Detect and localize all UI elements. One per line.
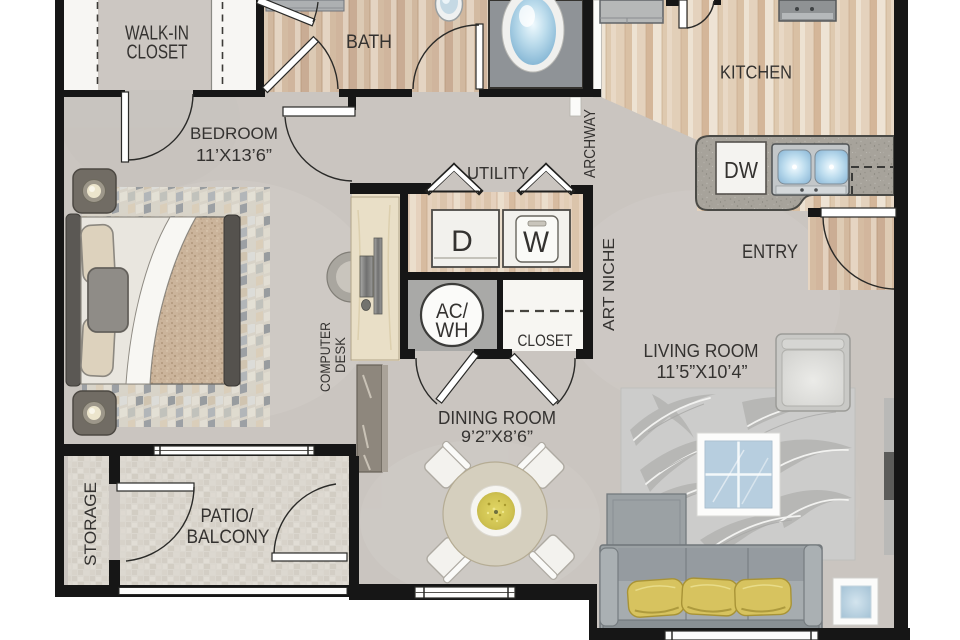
svg-text:WH: WH bbox=[436, 319, 469, 342]
svg-text:KITCHEN: KITCHEN bbox=[720, 62, 792, 83]
svg-text:W: W bbox=[523, 226, 550, 259]
svg-text:ARCHWAY: ARCHWAY bbox=[582, 109, 599, 178]
svg-text:11’5”X10’4”: 11’5”X10’4” bbox=[657, 361, 748, 382]
svg-text:11’X13’6”: 11’X13’6” bbox=[196, 145, 272, 165]
svg-text:DESK: DESK bbox=[333, 337, 348, 373]
svg-text:STORAGE: STORAGE bbox=[81, 482, 100, 566]
svg-text:D: D bbox=[451, 225, 473, 258]
svg-text:COMPUTER: COMPUTER bbox=[318, 322, 333, 392]
svg-text:CLOSET: CLOSET bbox=[127, 41, 188, 64]
svg-text:9’2”X8’6”: 9’2”X8’6” bbox=[461, 427, 533, 446]
svg-text:DW: DW bbox=[724, 157, 759, 183]
svg-text:ENTRY: ENTRY bbox=[742, 242, 798, 263]
svg-text:ART NICHE: ART NICHE bbox=[601, 238, 618, 331]
svg-text:DINING ROOM: DINING ROOM bbox=[438, 408, 556, 428]
svg-text:LIVING ROOM: LIVING ROOM bbox=[644, 340, 759, 361]
svg-text:BATH: BATH bbox=[346, 31, 392, 53]
svg-text:UTILITY: UTILITY bbox=[467, 163, 529, 183]
svg-text:CLOSET: CLOSET bbox=[518, 332, 573, 350]
svg-text:BALCONY: BALCONY bbox=[187, 527, 270, 548]
svg-text:PATIO/: PATIO/ bbox=[201, 506, 255, 527]
svg-text:BEDROOM: BEDROOM bbox=[190, 124, 278, 143]
